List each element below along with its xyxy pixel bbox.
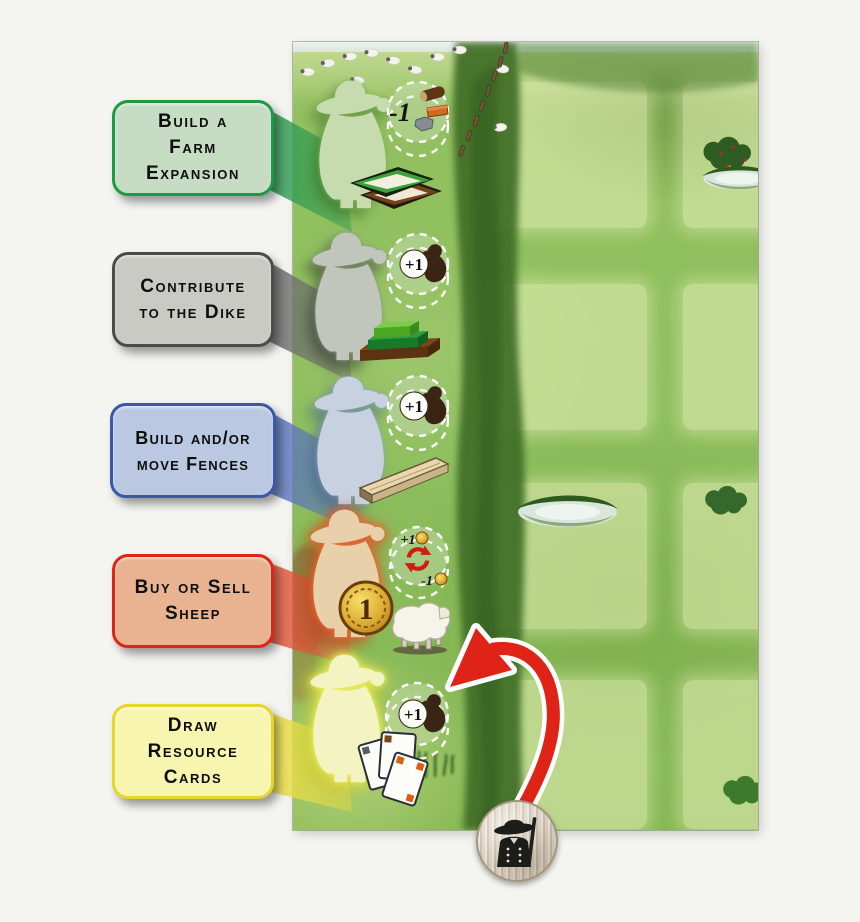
fence-beam-icon: [350, 448, 454, 506]
farmer-pawn-disc: [476, 800, 558, 882]
action-legend-infographic: -1 +1 +1 +1 -1 +: [0, 0, 860, 922]
dike-pieces-icon: [350, 310, 450, 366]
callout-line: to the Dike: [139, 300, 246, 326]
farm-expansion-tiles-icon: [348, 155, 448, 217]
token-value: -1: [389, 98, 411, 127]
token-value-top: +1: [401, 533, 416, 548]
callout-line: Contribute: [139, 274, 246, 300]
callout-line: Cards: [148, 765, 239, 791]
coin-icon: 1: [340, 582, 392, 634]
callout-line: Resource: [148, 739, 239, 765]
callout-line: move Fences: [135, 451, 250, 477]
farmer-pawn-icon: [487, 811, 547, 871]
token-value: +1: [405, 255, 423, 274]
curved-red-arrow-icon: [398, 598, 598, 838]
callout-line: Build and/or: [135, 425, 250, 451]
coin-value: 1: [359, 593, 374, 626]
callout-buy-sell-sheep: Buy or Sell Sheep: [112, 554, 274, 648]
callout-line: Draw: [148, 713, 239, 739]
callout-build-move-fences: Build and/or move Fences: [110, 403, 276, 498]
callout-line: Buy or Sell: [135, 575, 252, 601]
callout-line: Sheep: [135, 601, 252, 627]
callout-line: Farm: [146, 135, 240, 161]
coin-icon: [416, 532, 428, 544]
callout-contribute-to-dike: Contribute to the Dike: [112, 252, 274, 347]
callout-build-farm-expansion: Build a Farm Expansion: [112, 100, 274, 196]
callout-line: Expansion: [146, 161, 240, 187]
token-plus1-dike: +1: [370, 220, 466, 324]
token-value: +1: [405, 397, 423, 416]
callout-draw-resource-cards: Draw Resource Cards: [112, 704, 274, 799]
callout-line: Build a: [146, 109, 240, 135]
